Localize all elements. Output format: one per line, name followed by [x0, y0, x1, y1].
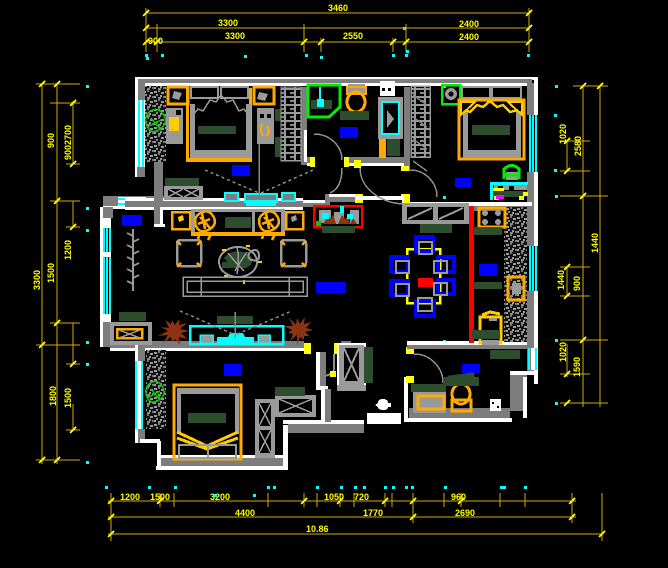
svg-text:2580: 2580 — [573, 136, 583, 156]
svg-text:3300: 3300 — [225, 31, 245, 41]
svg-text:3300: 3300 — [218, 18, 238, 28]
svg-text:1200: 1200 — [120, 492, 140, 502]
svg-text:900: 900 — [148, 36, 163, 46]
svg-text:2690: 2690 — [455, 508, 475, 518]
svg-text:1020: 1020 — [558, 124, 568, 144]
svg-text:2700: 2700 — [63, 125, 73, 145]
svg-text:4400: 4400 — [235, 508, 255, 518]
svg-text:3460: 3460 — [328, 3, 348, 13]
svg-text:1050: 1050 — [324, 492, 344, 502]
svg-text:10.86: 10.86 — [306, 524, 329, 534]
svg-text:720: 720 — [354, 492, 369, 502]
svg-text:2550: 2550 — [343, 31, 363, 41]
svg-text:1500: 1500 — [46, 263, 56, 283]
svg-text:1500: 1500 — [63, 388, 73, 408]
svg-text:900: 900 — [46, 133, 56, 148]
svg-text:1020: 1020 — [558, 342, 568, 362]
svg-text:1500: 1500 — [150, 492, 170, 502]
svg-text:1200: 1200 — [63, 240, 73, 260]
svg-text:1440: 1440 — [590, 233, 600, 253]
svg-text:960: 960 — [451, 492, 466, 502]
svg-text:1800: 1800 — [48, 386, 58, 406]
svg-text:2400: 2400 — [459, 32, 479, 42]
svg-text:3300: 3300 — [32, 270, 42, 290]
svg-text:1770: 1770 — [363, 508, 383, 518]
svg-text:900: 900 — [63, 145, 73, 160]
svg-text:1440: 1440 — [556, 270, 566, 290]
svg-text:2400: 2400 — [459, 19, 479, 29]
svg-text:1590: 1590 — [572, 357, 582, 377]
svg-text:900: 900 — [572, 276, 582, 291]
svg-text:3200: 3200 — [210, 492, 230, 502]
